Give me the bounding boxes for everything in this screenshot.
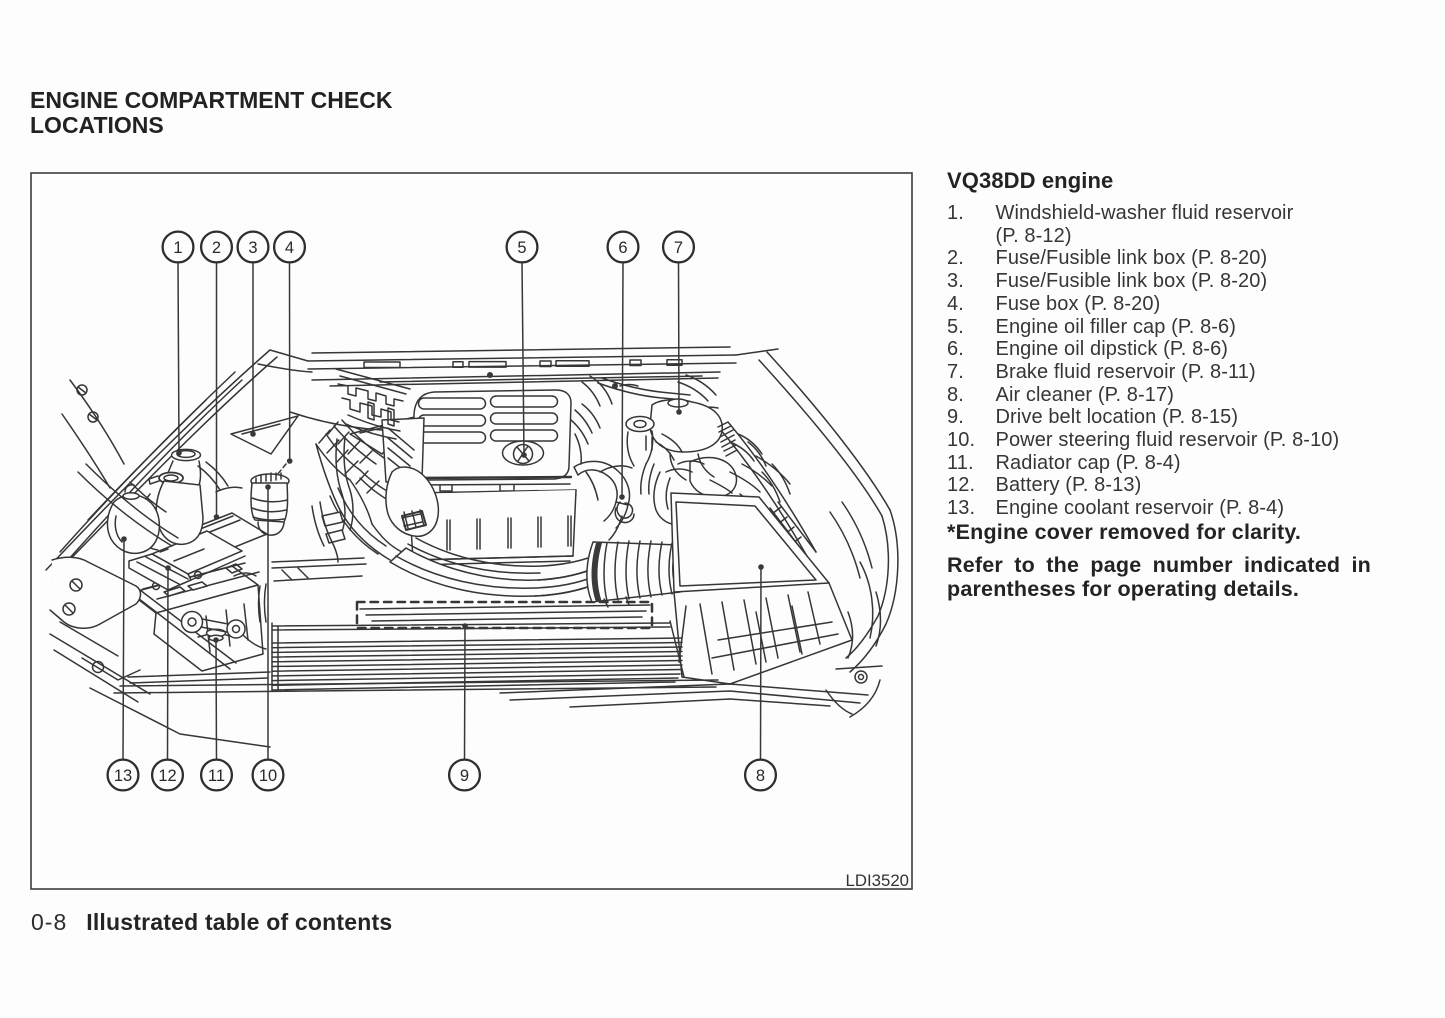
svg-text:13: 13 — [114, 767, 132, 785]
svg-text:4: 4 — [285, 239, 294, 257]
svg-text:8: 8 — [756, 767, 765, 785]
svg-text:6: 6 — [618, 239, 627, 257]
svg-text:11: 11 — [208, 767, 225, 785]
svg-text:2: 2 — [212, 239, 221, 257]
svg-text:9: 9 — [460, 767, 469, 785]
svg-text:10: 10 — [259, 767, 277, 785]
svg-text:12: 12 — [158, 767, 176, 785]
svg-text:3: 3 — [248, 239, 257, 257]
svg-text:7: 7 — [674, 239, 683, 257]
svg-text:5: 5 — [517, 239, 526, 257]
svg-text:1: 1 — [173, 239, 182, 257]
svg-text:LDI3520: LDI3520 — [846, 871, 909, 890]
